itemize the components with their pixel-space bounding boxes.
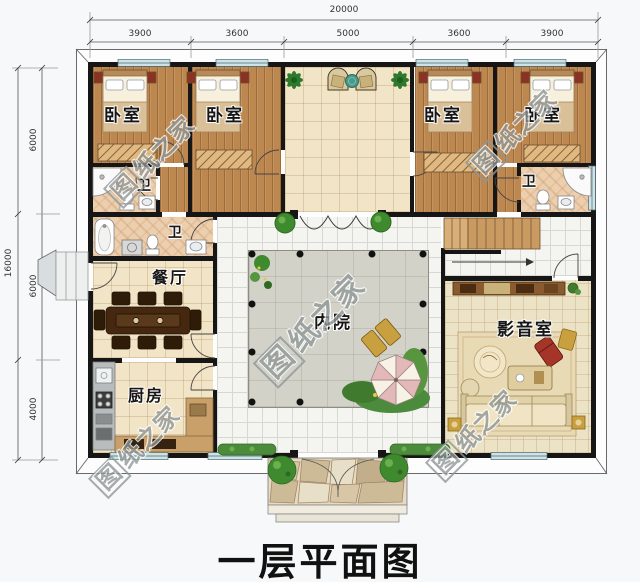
courtyard-decor <box>218 212 450 455</box>
dim-left-total: 16000 <box>4 233 14 293</box>
dim-top-seg-2: 3600 <box>212 29 262 39</box>
dining-furniture <box>94 292 201 349</box>
dim-left-seg-3: 4000 <box>29 384 39 434</box>
dim-top-seg-1: 3900 <box>115 29 165 39</box>
dim-top-total: 20000 <box>309 5 379 15</box>
dining-room-label: 餐厅 <box>152 264 188 288</box>
bathroom-2-label: 卫 <box>168 222 184 242</box>
dim-top-seg-3: 5000 <box>323 29 373 39</box>
bathroom-3-label: 卫 <box>522 171 538 191</box>
dim-left-seg-2: 6000 <box>29 261 39 311</box>
bedroom-3-label: 卧室 <box>424 101 462 126</box>
floorplan-page: 20000 3900 3600 5000 3600 3900 16000 600… <box>0 0 640 582</box>
staircase <box>444 218 540 266</box>
dim-top-seg-5: 3900 <box>527 29 577 39</box>
entrance-porch <box>268 454 408 522</box>
dim-left-seg-1: 6000 <box>29 115 39 165</box>
bedroom-2-label: 卧室 <box>206 101 244 126</box>
dim-top-seg-4: 3600 <box>434 29 484 39</box>
media-room-label: 影音室 <box>497 315 554 340</box>
lounge-chairs <box>361 318 402 358</box>
entry-hall-furniture <box>285 68 409 90</box>
bedroom-1-label: 卧室 <box>104 101 142 126</box>
side-entrance-steps <box>38 250 88 300</box>
parasol <box>371 355 421 405</box>
plan-title: 一层平面图 <box>0 531 640 582</box>
